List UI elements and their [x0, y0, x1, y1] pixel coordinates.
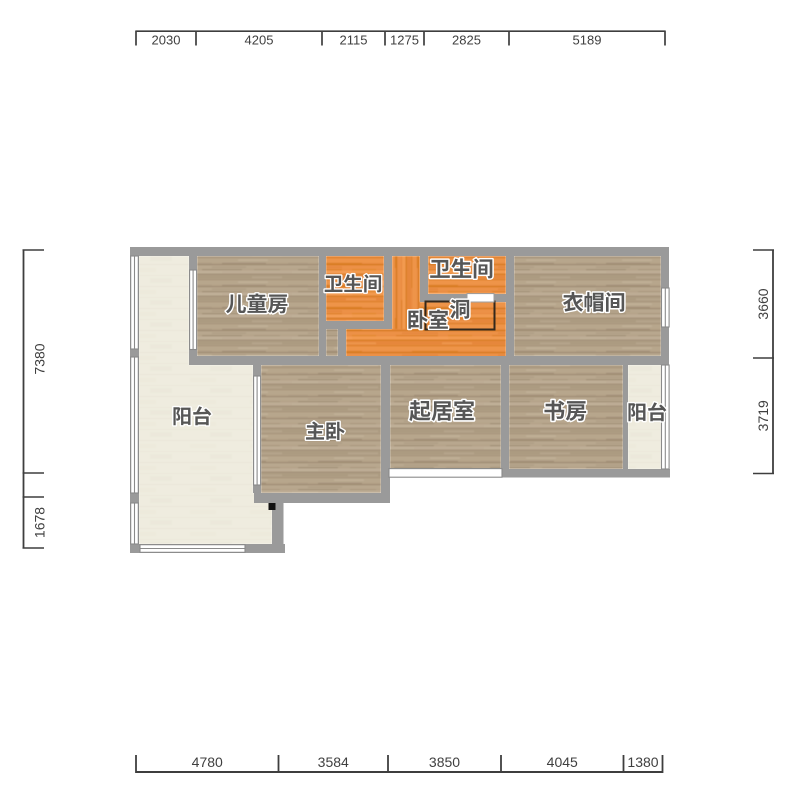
svg-text:5189: 5189 [573, 32, 602, 47]
svg-text:1275: 1275 [390, 32, 419, 47]
svg-text:7380: 7380 [32, 343, 48, 374]
svg-text:1678: 1678 [32, 507, 48, 538]
svg-text:1380: 1380 [627, 754, 658, 770]
svg-text:3584: 3584 [318, 754, 349, 770]
svg-text:2115: 2115 [340, 32, 368, 47]
svg-text:4045: 4045 [547, 754, 578, 770]
svg-text:4780: 4780 [192, 754, 223, 770]
svg-text:3850: 3850 [429, 754, 460, 770]
svg-text:3719: 3719 [755, 400, 771, 431]
svg-text:2030: 2030 [152, 32, 181, 47]
svg-text:4205: 4205 [245, 32, 274, 47]
svg-text:3660: 3660 [755, 288, 771, 319]
svg-text:2825: 2825 [452, 32, 481, 47]
